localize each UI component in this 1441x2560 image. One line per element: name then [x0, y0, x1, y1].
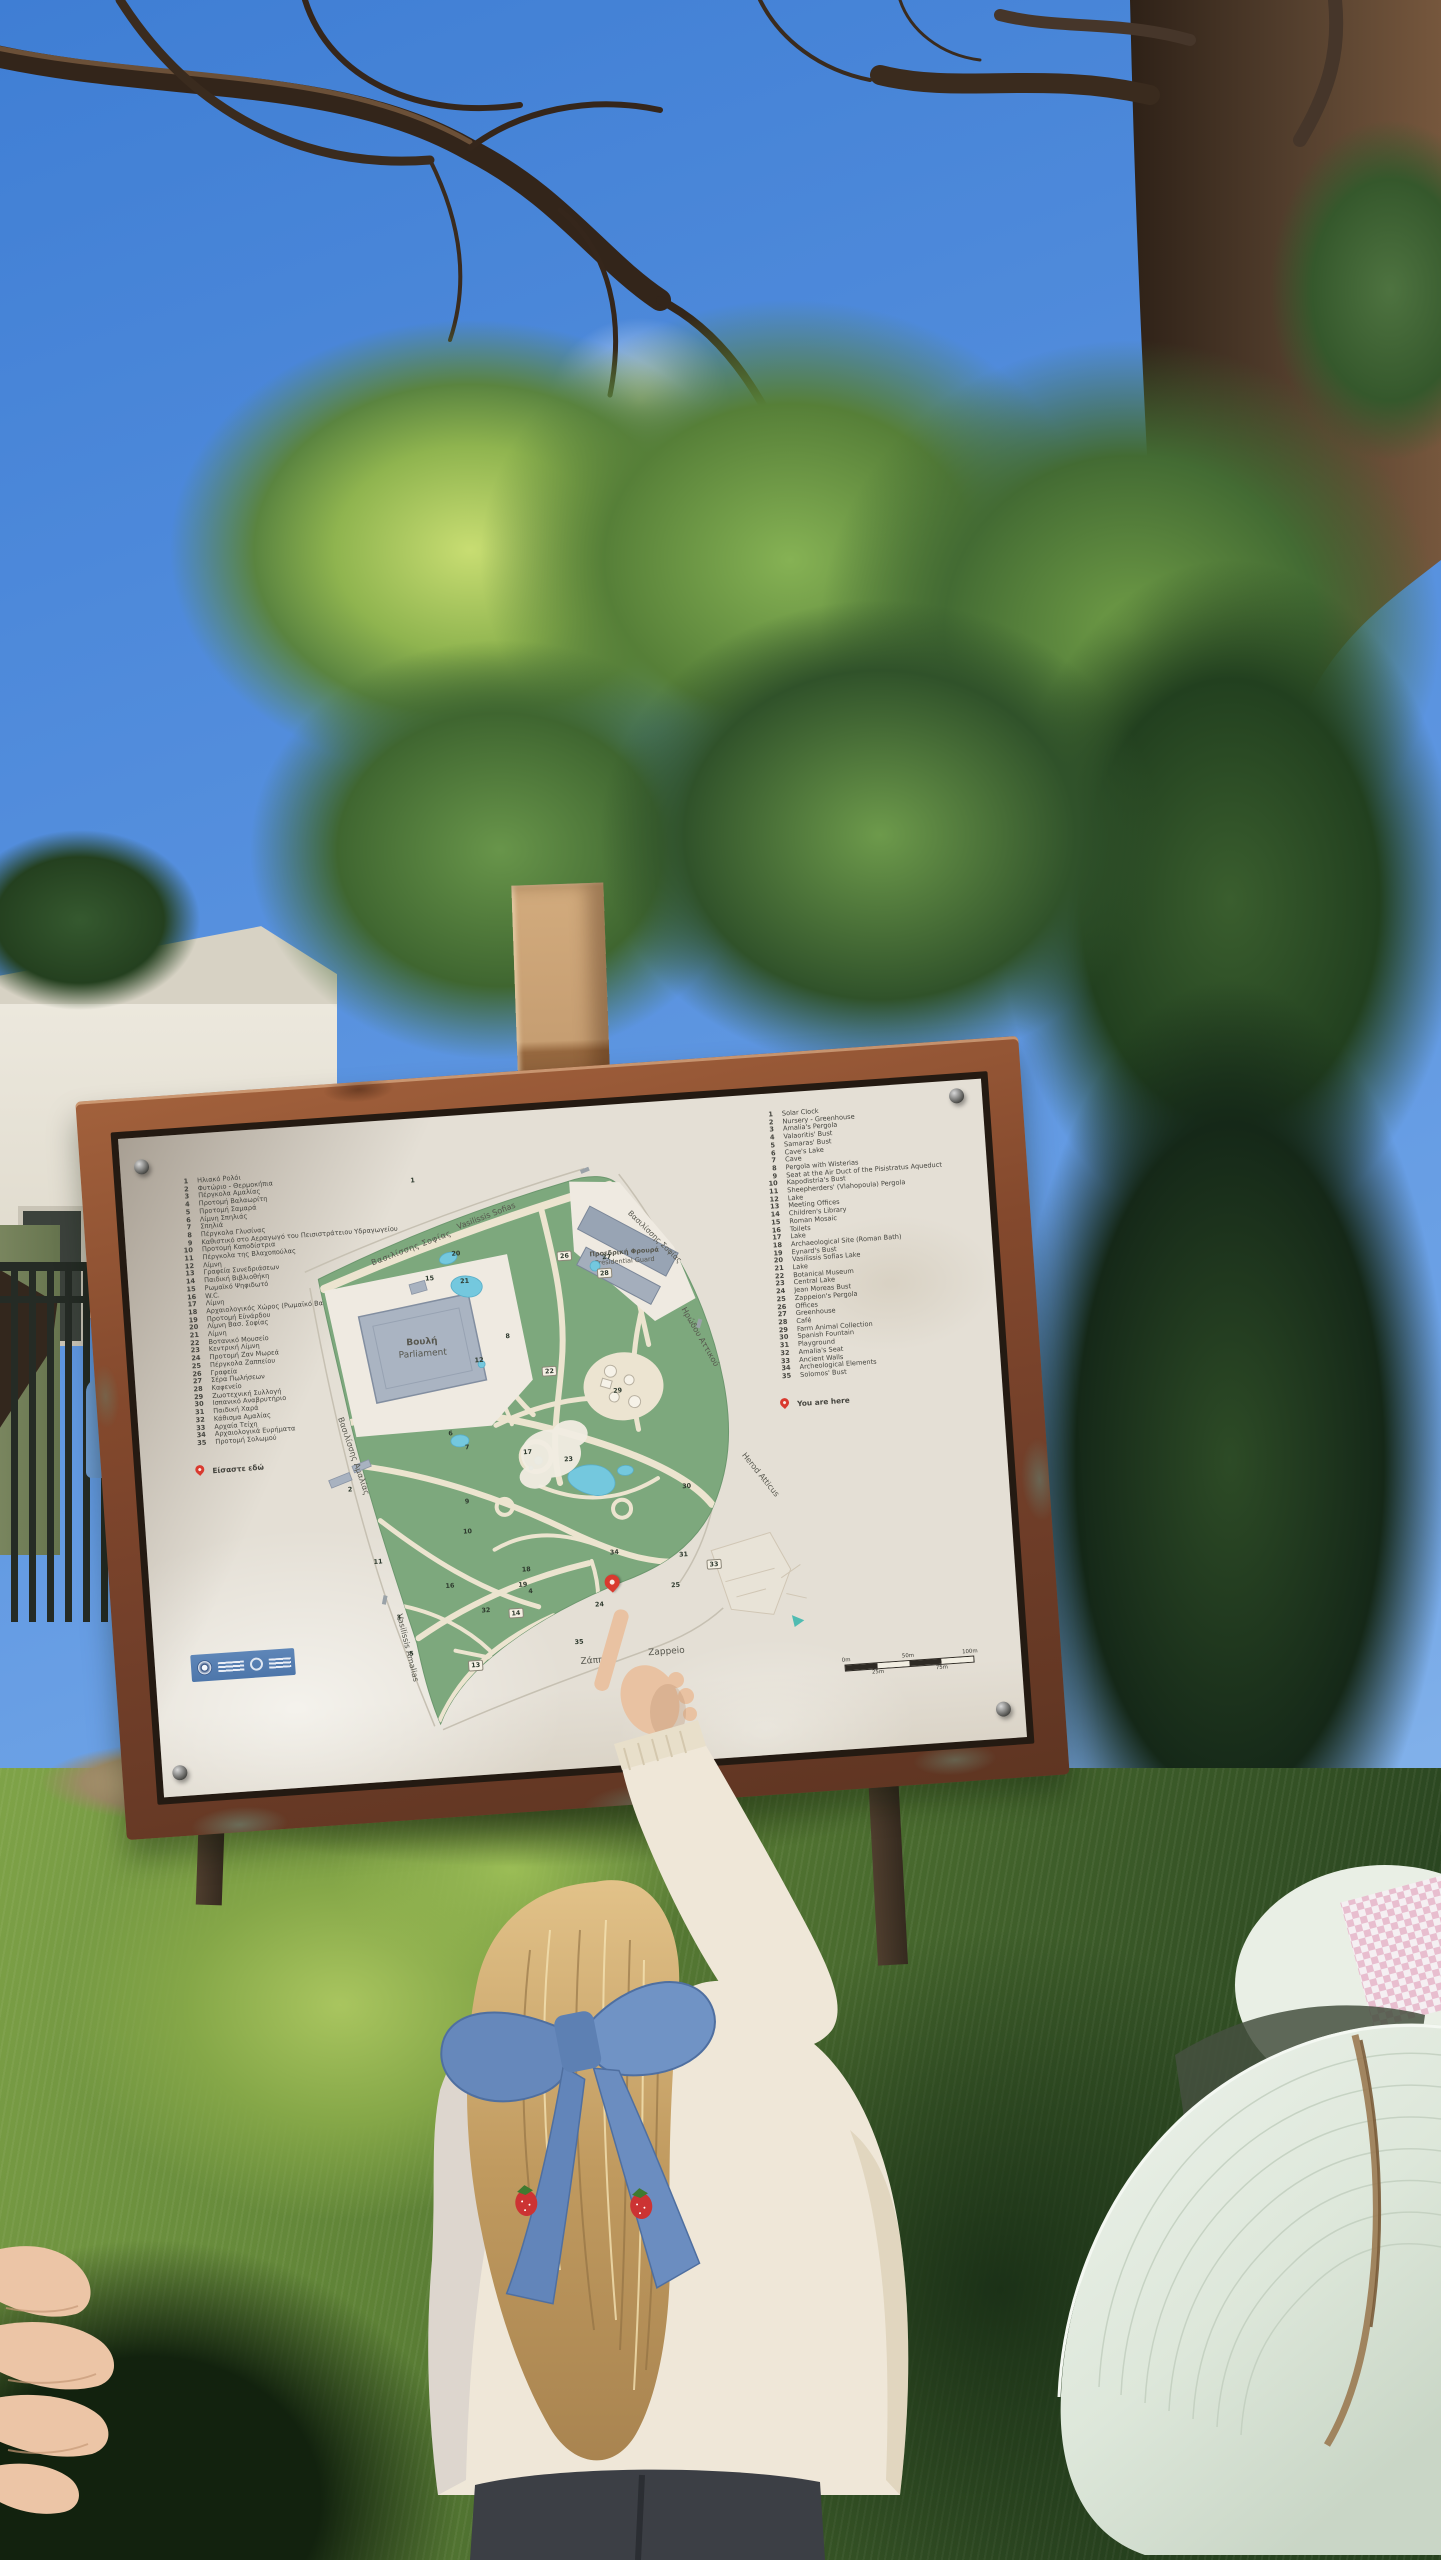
screw-icon [995, 1701, 1011, 1717]
adult-hand [0, 2130, 186, 2530]
map-marker-9: 9 [465, 1498, 470, 1505]
you-are-here-label: You are here [797, 1396, 850, 1409]
map-marker-12: 12 [474, 1357, 483, 1364]
map-marker-17: 17 [523, 1448, 532, 1455]
legend-item-label: Solomos' Bust [800, 1369, 847, 1380]
map-marker-15: 15 [425, 1275, 434, 1282]
map-marker-7: 7 [465, 1444, 470, 1451]
map-marker-6: 6 [448, 1430, 453, 1437]
child-pointing [380, 1530, 940, 2560]
screw-icon [172, 1765, 188, 1781]
scale-label: 100m [962, 1648, 978, 1655]
map-marker-29: 29 [613, 1387, 622, 1394]
screw-icon [134, 1159, 150, 1175]
map-marker-22: 22 [542, 1366, 558, 1377]
map-marker-8: 8 [505, 1333, 510, 1340]
photo-scene: 1 Ηλιακό Ρολόι 2 Φυτώριο - Θερμοκήπια 3 … [0, 0, 1441, 2560]
you-are-here-pin-icon [193, 1463, 206, 1476]
map-marker-28: 28 [597, 1267, 613, 1278]
map-marker-23: 23 [564, 1456, 573, 1463]
map-marker-21: 21 [460, 1278, 469, 1285]
legend-english: 1 Solar Clock 2 Nursery - Greenhouse 3 A… [758, 1097, 996, 1381]
map-marker-30: 30 [682, 1483, 691, 1490]
map-marker-1: 1 [410, 1177, 415, 1184]
bucket-hat [1055, 1855, 1441, 2560]
pointing-hand [593, 1608, 697, 1745]
map-marker-20: 20 [451, 1250, 460, 1257]
logo-text-lines [218, 1660, 245, 1672]
tree-trunk [880, 0, 1441, 985]
map-marker-27: 27 [602, 1254, 611, 1261]
organization-emblem-icon [250, 1657, 264, 1671]
legend-item-number: 35 [191, 1439, 207, 1448]
logo-text-lines [269, 1657, 292, 1669]
map-marker-2: 2 [348, 1486, 353, 1493]
city-emblem-icon [197, 1660, 213, 1676]
pants [470, 2470, 825, 2560]
map-marker-26: 26 [557, 1250, 573, 1261]
